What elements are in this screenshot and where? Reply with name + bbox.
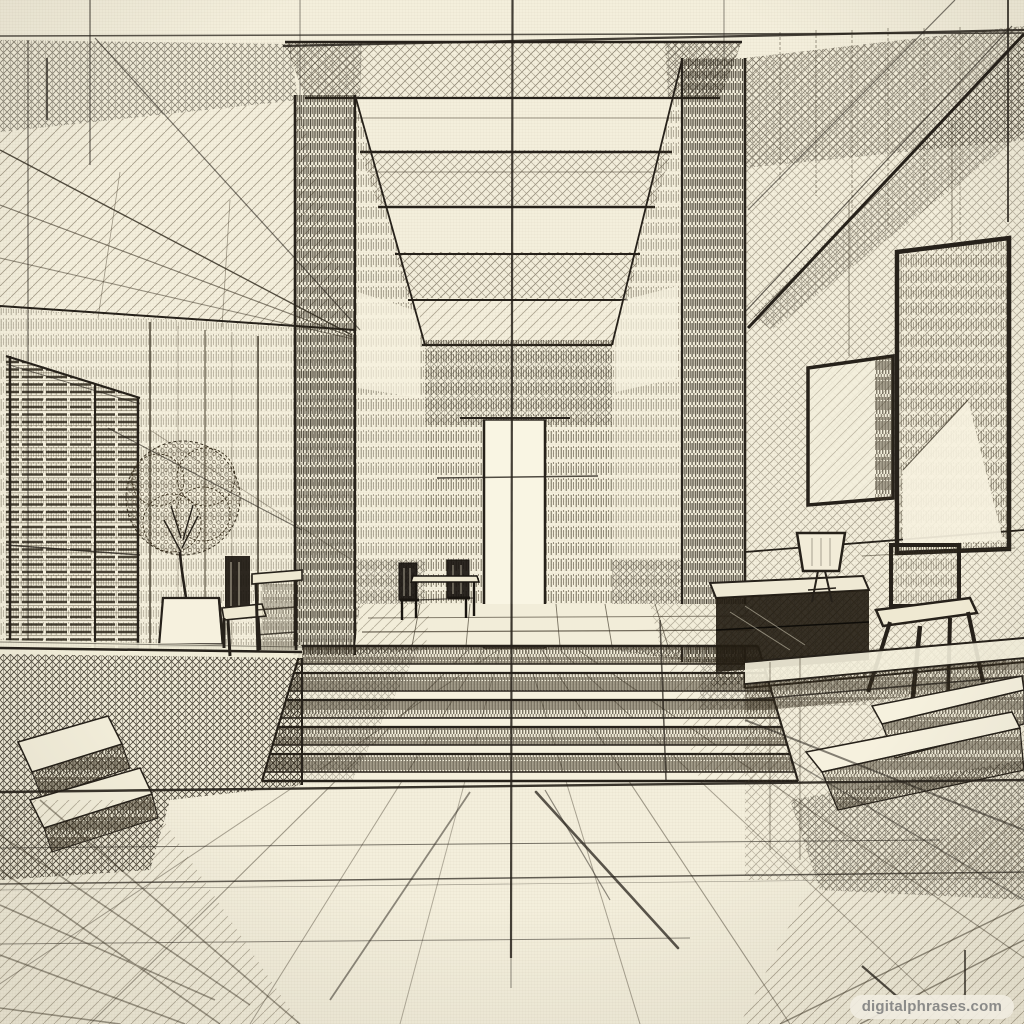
watermark: digitalphrases.com bbox=[850, 995, 1014, 1019]
paper-vignette bbox=[0, 0, 1024, 1024]
sketch-image: digitalphrases.com bbox=[0, 0, 1024, 1024]
watermark-text: digitalphrases.com bbox=[862, 998, 1002, 1015]
pencil-sketch bbox=[0, 0, 1024, 1024]
